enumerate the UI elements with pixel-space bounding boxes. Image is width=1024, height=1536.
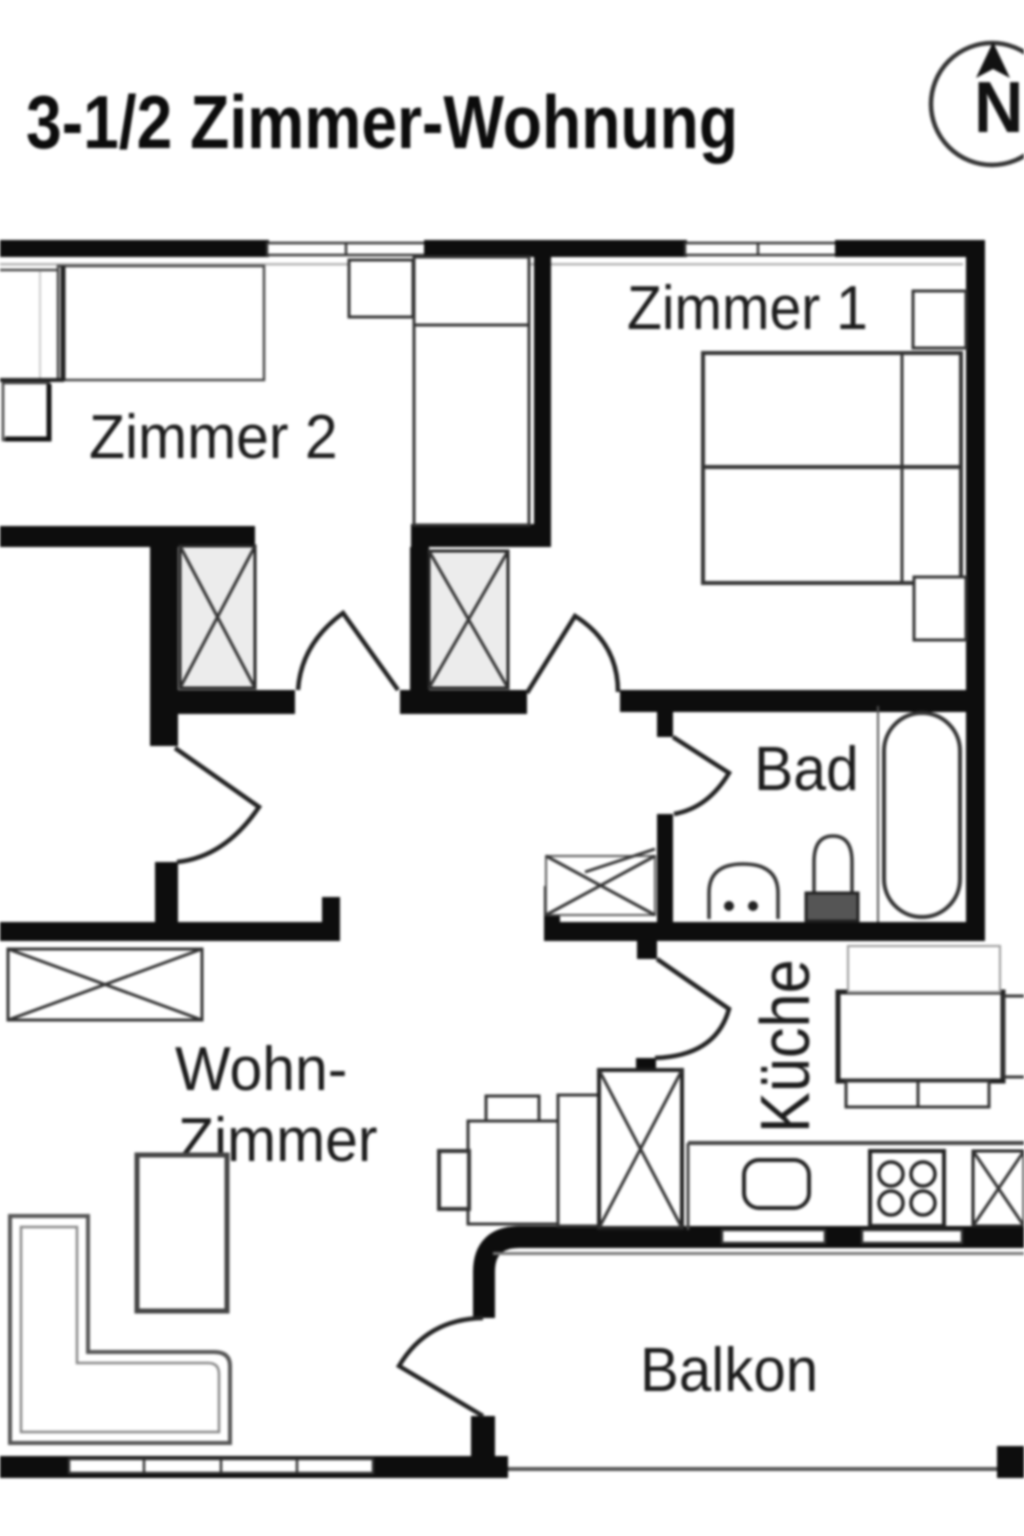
svg-text:Zimmer 1: Zimmer 1 bbox=[627, 273, 868, 343]
svg-text:Zimmer 2: Zimmer 2 bbox=[89, 402, 338, 472]
svg-text:N: N bbox=[974, 66, 1023, 147]
svg-text:Bad: Bad bbox=[754, 734, 859, 804]
svg-text:Wohn-: Wohn- bbox=[175, 1034, 347, 1104]
svg-text:Balkon: Balkon bbox=[640, 1335, 818, 1404]
svg-text:Küche: Küche bbox=[745, 959, 824, 1133]
svg-text:3-1/2 Zimmer-Wohnung: 3-1/2 Zimmer-Wohnung bbox=[26, 80, 738, 164]
